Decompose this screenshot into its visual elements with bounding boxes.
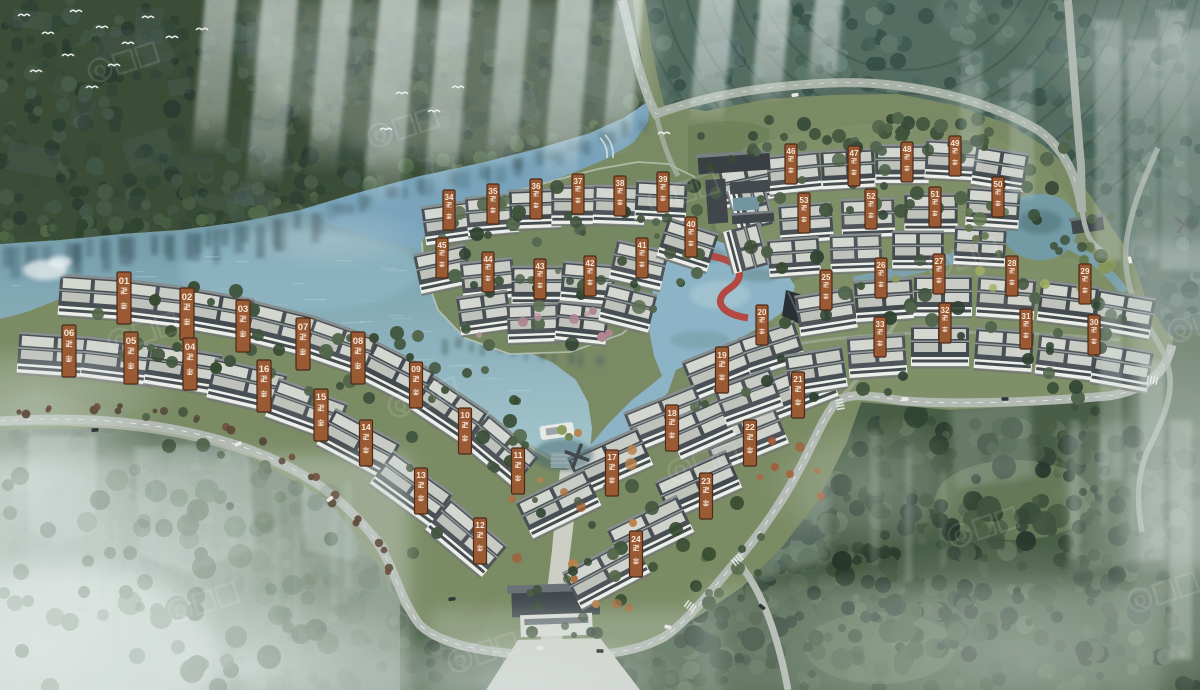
svg-text:31: 31 (1022, 312, 1031, 321)
svg-text:38: 38 (616, 179, 625, 188)
svg-text:22: 22 (745, 422, 755, 432)
svg-text:40: 40 (687, 220, 696, 229)
svg-text:34: 34 (445, 193, 454, 202)
svg-text:18: 18 (667, 408, 677, 418)
svg-text:47: 47 (850, 149, 859, 158)
svg-text:19: 19 (717, 350, 727, 360)
svg-text:46: 46 (787, 147, 796, 156)
svg-text:15: 15 (316, 392, 327, 403)
svg-text:44: 44 (484, 255, 493, 264)
svg-text:20: 20 (758, 308, 767, 317)
svg-text:39: 39 (659, 175, 668, 184)
svg-text:13: 13 (416, 470, 426, 480)
svg-text:09: 09 (411, 364, 421, 374)
svg-text:11: 11 (514, 450, 523, 460)
svg-text:29: 29 (1081, 267, 1090, 276)
svg-text:14: 14 (361, 422, 371, 432)
svg-text:10: 10 (460, 410, 470, 420)
svg-text:01: 01 (119, 276, 130, 287)
svg-text:05: 05 (126, 336, 137, 347)
svg-text:21: 21 (793, 374, 803, 384)
svg-text:35: 35 (489, 187, 498, 196)
svg-text:04: 04 (185, 342, 196, 353)
svg-text:51: 51 (931, 190, 940, 199)
svg-text:03: 03 (238, 304, 249, 315)
svg-text:41: 41 (638, 241, 647, 250)
svg-text:52: 52 (867, 192, 876, 201)
svg-text:43: 43 (536, 262, 545, 271)
svg-text:27: 27 (935, 257, 944, 266)
svg-text:08: 08 (353, 336, 364, 347)
svg-text:17: 17 (607, 452, 617, 462)
svg-text:16: 16 (259, 364, 270, 375)
svg-text:50: 50 (994, 180, 1003, 189)
svg-text:30: 30 (1090, 318, 1099, 327)
svg-text:06: 06 (64, 328, 75, 339)
svg-text:33: 33 (876, 320, 885, 329)
svg-text:32: 32 (941, 306, 950, 315)
svg-text:25: 25 (822, 273, 831, 282)
svg-text:36: 36 (532, 182, 541, 191)
svg-text:02: 02 (182, 292, 193, 303)
svg-text:07: 07 (298, 322, 309, 333)
svg-text:12: 12 (475, 520, 485, 530)
svg-text:37: 37 (574, 177, 583, 186)
svg-text:42: 42 (586, 259, 595, 268)
svg-text:23: 23 (701, 476, 711, 486)
svg-text:26: 26 (877, 261, 886, 270)
svg-text:45: 45 (438, 241, 447, 250)
svg-text:24: 24 (631, 534, 641, 544)
svg-text:28: 28 (1008, 259, 1017, 268)
svg-text:49: 49 (951, 139, 960, 148)
svg-text:53: 53 (800, 196, 809, 205)
svg-text:48: 48 (903, 145, 912, 154)
